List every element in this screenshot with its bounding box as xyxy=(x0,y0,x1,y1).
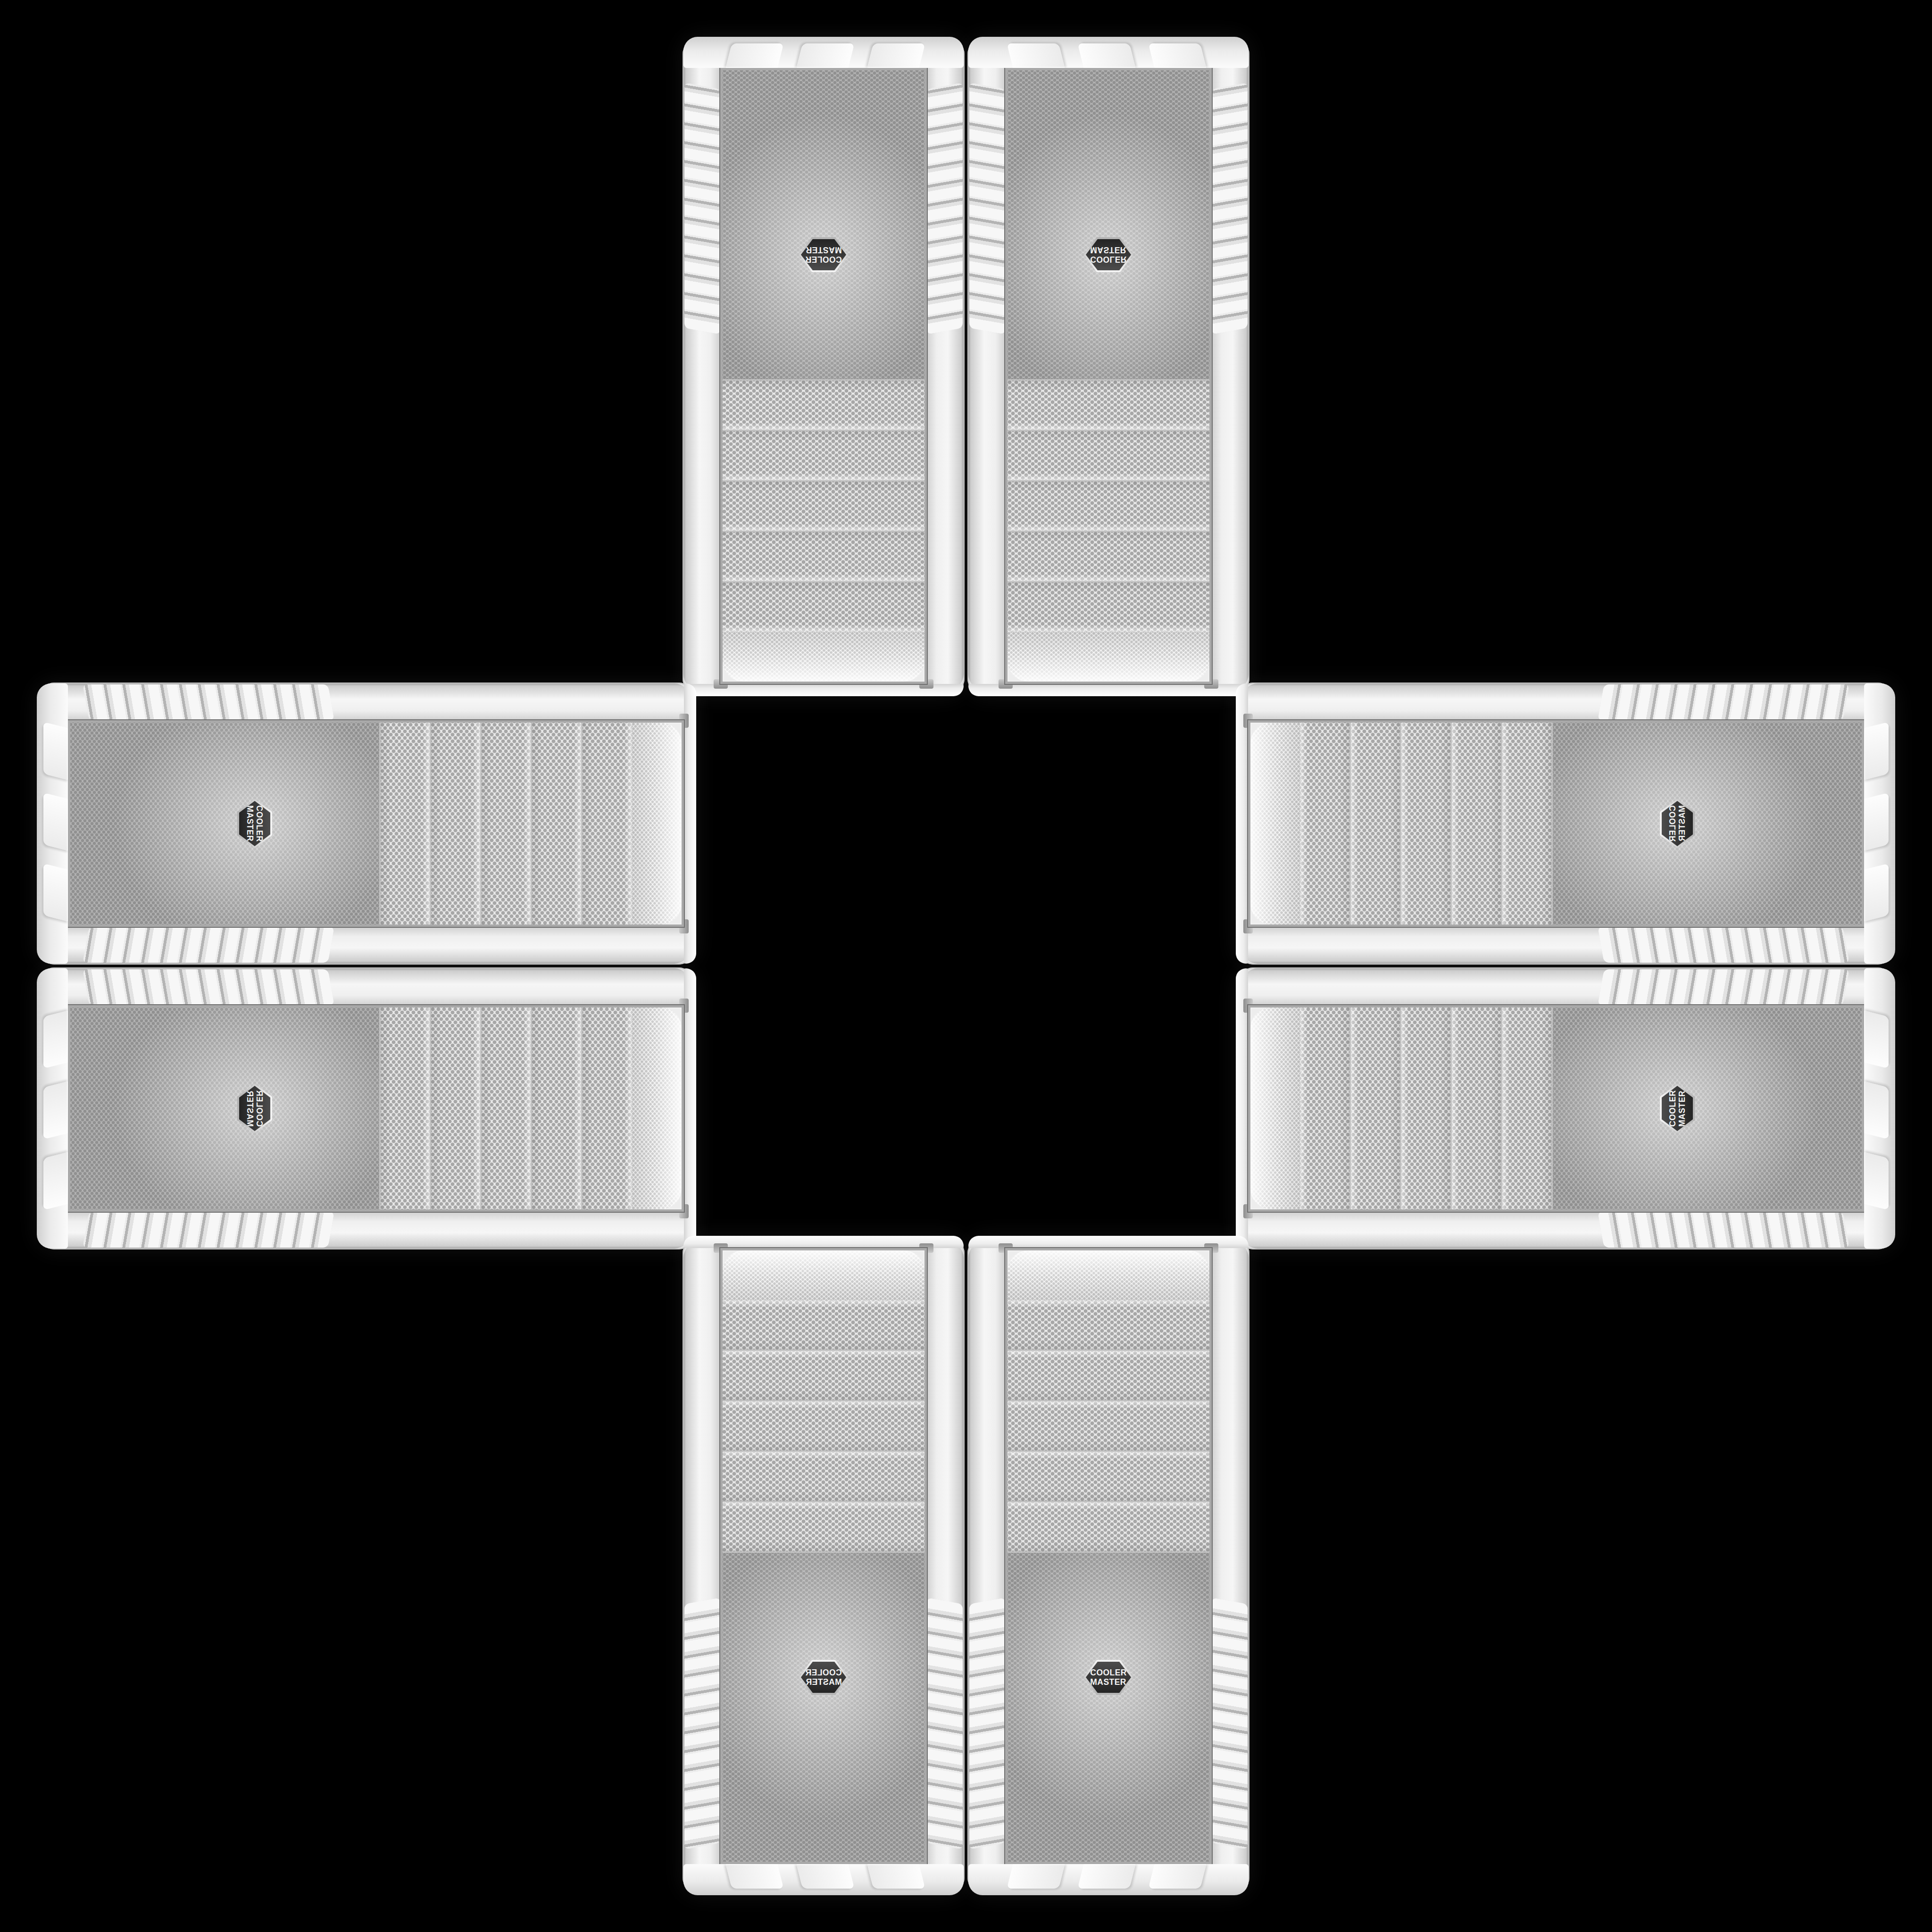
vent-cap-segment xyxy=(726,1864,784,1889)
mesh-top-curve xyxy=(1008,632,1209,682)
drive-bay-cover xyxy=(581,723,632,924)
front-mesh-region: COOLER MASTER xyxy=(720,1248,927,1864)
case-side-rail-right xyxy=(683,43,721,690)
front-mesh-panel: COOLER MASTER xyxy=(70,1008,379,1209)
badge-text-line2: MASTER xyxy=(245,806,255,842)
pc-case-front-panel: COOLER MASTER xyxy=(683,1236,965,1895)
cooler-master-badge: COOLER MASTER xyxy=(237,1084,272,1133)
vent-cap-segment xyxy=(43,1152,68,1210)
drive-bay-cover xyxy=(1401,723,1452,924)
drive-bay-cover xyxy=(1008,430,1209,480)
front-mesh-region: COOLER MASTER xyxy=(68,720,684,927)
badge-text-line1: COOLER xyxy=(805,255,842,264)
front-mesh-panel: COOLER MASTER xyxy=(1008,70,1209,379)
drive-bay-cover xyxy=(723,480,924,531)
front-mesh-region: COOLER MASTER xyxy=(68,1005,684,1212)
front-mesh-region: COOLER MASTER xyxy=(1005,1248,1212,1864)
badge-text-line2: MASTER xyxy=(806,1677,842,1687)
vent-cap-segment xyxy=(1864,864,1889,922)
drive-bay-cover xyxy=(1008,1300,1209,1351)
bottom-vent-cap xyxy=(968,1864,1249,1895)
badge-text-line1: COOLER xyxy=(255,1090,264,1127)
drive-bay-cover xyxy=(723,531,924,581)
drive-bay-cover xyxy=(480,723,531,924)
case-panel-top-right: COOLER MASTER xyxy=(967,37,1249,696)
drive-bay-cover xyxy=(430,723,480,924)
drive-bay-cover xyxy=(1008,379,1209,430)
case-panel-left-bottom: COOLER MASTER xyxy=(37,967,696,1249)
vent-cap-segment xyxy=(43,722,68,780)
grip-ribs-right xyxy=(83,927,334,963)
badge-text-line1: COOLER xyxy=(1090,1668,1127,1677)
drive-bay-cover xyxy=(531,1008,581,1209)
grip-ribs-right xyxy=(1212,1598,1248,1849)
badge-text-line2: MASTER xyxy=(1677,1091,1687,1127)
grip-ribs-left xyxy=(969,1598,1005,1849)
drive-bay-covers xyxy=(723,1300,924,1553)
badge-text-line2: MASTER xyxy=(1091,245,1127,255)
case-side-rail-left xyxy=(43,683,690,721)
badge-text-line1: COOLER xyxy=(1668,805,1677,842)
vent-cap-segment xyxy=(1864,793,1889,851)
pc-case-front-panel: COOLER MASTER xyxy=(967,1236,1249,1895)
case-side-rail-left xyxy=(1242,1211,1889,1249)
drive-bay-covers xyxy=(1008,1300,1209,1553)
vent-cap-segment xyxy=(43,1011,68,1069)
bottom-vent-cap xyxy=(683,37,964,68)
front-mesh-panel: COOLER MASTER xyxy=(70,723,379,924)
front-mesh-region: COOLER MASTER xyxy=(1248,1005,1864,1212)
case-panel-bottom-right: COOLER MASTER xyxy=(967,1236,1249,1895)
front-mesh-panel: COOLER MASTER xyxy=(1553,1008,1862,1209)
drive-bay-covers xyxy=(1300,1008,1553,1209)
pc-case-front-panel: COOLER MASTER xyxy=(1236,967,1895,1249)
drive-bay-covers xyxy=(723,379,924,632)
drive-bay-cover xyxy=(430,1008,480,1209)
drive-bay-cover xyxy=(1401,1008,1452,1209)
case-side-rail-right xyxy=(43,968,690,1006)
bottom-vent-cap xyxy=(683,1864,964,1895)
drive-bay-cover xyxy=(1008,480,1209,531)
front-mesh-region: COOLER MASTER xyxy=(720,68,927,684)
mesh-top-curve xyxy=(723,632,924,682)
mesh-top-curve xyxy=(1250,1008,1300,1209)
drive-bay-cover xyxy=(1300,723,1351,924)
case-side-rail-right xyxy=(1211,1242,1249,1889)
bottom-vent-cap xyxy=(1864,968,1895,1249)
cooler-master-badge: COOLER MASTER xyxy=(1084,1660,1133,1695)
pc-case-front-panel: COOLER MASTER xyxy=(967,37,1249,696)
case-side-rail-left xyxy=(926,1242,964,1889)
drive-bay-cover xyxy=(1502,1008,1553,1209)
case-side-rail-right xyxy=(1242,968,1889,1006)
case-side-rail-left xyxy=(968,1242,1006,1889)
drive-bay-covers xyxy=(379,1008,632,1209)
vent-cap-segment xyxy=(43,864,68,922)
pc-case-front-panel: COOLER MASTER xyxy=(1236,683,1895,965)
drive-bay-cover xyxy=(1008,1502,1209,1553)
case-side-rail-left xyxy=(926,43,964,690)
mesh-top-curve xyxy=(632,1008,682,1209)
grip-ribs-left xyxy=(83,1212,334,1248)
drive-bay-cover xyxy=(1502,723,1553,924)
drive-bay-cover xyxy=(723,379,924,430)
badge-text-line1: COOLER xyxy=(805,1668,842,1677)
grip-ribs-right xyxy=(1212,83,1248,334)
grip-ribs-right xyxy=(684,83,720,334)
case-side-rail-left xyxy=(1242,683,1889,721)
grip-ribs-left xyxy=(969,83,1005,334)
grip-ribs-left xyxy=(1598,684,1849,720)
drive-bay-cover xyxy=(379,723,430,924)
bottom-vent-cap xyxy=(1864,683,1895,964)
vent-cap-segment xyxy=(1007,1864,1065,1889)
grip-ribs-left xyxy=(927,83,963,334)
front-mesh-panel: COOLER MASTER xyxy=(723,1553,924,1862)
bottom-vent-cap xyxy=(37,683,68,964)
drive-bay-cover xyxy=(723,581,924,632)
cooler-master-badge: COOLER MASTER xyxy=(799,237,848,272)
drive-bay-cover xyxy=(723,430,924,480)
drive-bay-cover xyxy=(531,723,581,924)
mesh-top-curve xyxy=(1250,723,1300,924)
grip-ribs-left xyxy=(83,684,334,720)
grip-ribs-right xyxy=(83,969,334,1005)
grip-ribs-left xyxy=(1598,1212,1849,1248)
vent-cap-segment xyxy=(43,793,68,851)
drive-bay-cover xyxy=(723,1401,924,1452)
drive-bay-cover xyxy=(1008,1452,1209,1502)
case-side-rail-right xyxy=(1211,43,1249,690)
cooler-master-badge: COOLER MASTER xyxy=(1660,799,1695,848)
badge-text-line2: MASTER xyxy=(1677,806,1687,842)
grip-ribs-left xyxy=(927,1598,963,1849)
drive-bay-cover xyxy=(1008,531,1209,581)
badge-text-line2: MASTER xyxy=(806,245,842,255)
vent-cap-segment xyxy=(797,1864,855,1889)
bottom-vent-cap xyxy=(968,37,1249,68)
drive-bay-cover xyxy=(1300,1008,1351,1209)
drive-bay-covers xyxy=(1300,723,1553,924)
drive-bay-cover xyxy=(723,1502,924,1553)
drive-bay-cover xyxy=(581,1008,632,1209)
badge-text-line1: COOLER xyxy=(255,805,264,842)
drive-bay-covers xyxy=(1008,379,1209,632)
badge-text-line2: MASTER xyxy=(1091,1677,1127,1687)
drive-bay-covers xyxy=(379,723,632,924)
case-side-rail-right xyxy=(43,926,690,964)
badge-text-line1: COOLER xyxy=(1090,255,1127,264)
kaleidoscope-collage: COOLER MASTER xyxy=(0,0,1932,1932)
case-panel-right-bottom: COOLER MASTER xyxy=(1236,967,1895,1249)
cooler-master-badge: COOLER MASTER xyxy=(237,799,272,848)
drive-bay-cover xyxy=(723,1351,924,1401)
vent-cap-segment xyxy=(1007,43,1065,68)
vent-cap-segment xyxy=(1149,1864,1207,1889)
badge-text-line1: COOLER xyxy=(1668,1090,1677,1127)
drive-bay-cover xyxy=(1452,1008,1502,1209)
mesh-top-curve xyxy=(723,1250,924,1300)
pc-case-front-panel: COOLER MASTER xyxy=(37,683,696,965)
vent-cap-segment xyxy=(1864,722,1889,780)
vent-cap-segment xyxy=(1149,43,1207,68)
vent-cap-segment xyxy=(1864,1082,1889,1140)
drive-bay-cover xyxy=(379,1008,430,1209)
drive-bay-cover xyxy=(1351,723,1401,924)
vent-cap-segment xyxy=(1078,43,1136,68)
drive-bay-cover xyxy=(1008,1401,1209,1452)
grip-ribs-right xyxy=(1598,927,1849,963)
case-panel-left-top: COOLER MASTER xyxy=(37,683,696,965)
front-mesh-region: COOLER MASTER xyxy=(1248,720,1864,927)
front-mesh-region: COOLER MASTER xyxy=(1005,68,1212,684)
case-side-rail-left xyxy=(968,43,1006,690)
pc-case-front-panel: COOLER MASTER xyxy=(683,37,965,696)
badge-text-line2: MASTER xyxy=(245,1091,255,1127)
drive-bay-cover xyxy=(1008,581,1209,632)
drive-bay-cover xyxy=(480,1008,531,1209)
vent-cap-segment xyxy=(867,1864,925,1889)
vent-cap-segment xyxy=(1864,1152,1889,1210)
drive-bay-cover xyxy=(723,1452,924,1502)
case-panel-right-top: COOLER MASTER xyxy=(1236,683,1895,965)
pc-case-front-panel: COOLER MASTER xyxy=(37,967,696,1249)
front-mesh-panel: COOLER MASTER xyxy=(723,70,924,379)
vent-cap-segment xyxy=(1864,1011,1889,1069)
cooler-master-badge: COOLER MASTER xyxy=(1660,1084,1695,1133)
vent-cap-segment xyxy=(726,43,784,68)
cooler-master-badge: COOLER MASTER xyxy=(799,1660,848,1695)
vent-cap-segment xyxy=(867,43,925,68)
cooler-master-badge: COOLER MASTER xyxy=(1084,237,1133,272)
case-side-rail-left xyxy=(43,1211,690,1249)
bottom-vent-cap xyxy=(37,968,68,1249)
mesh-top-curve xyxy=(1008,1250,1209,1300)
drive-bay-cover xyxy=(1351,1008,1401,1209)
drive-bay-cover xyxy=(723,1300,924,1351)
drive-bay-cover xyxy=(1008,1351,1209,1401)
vent-cap-segment xyxy=(43,1082,68,1140)
grip-ribs-right xyxy=(1598,969,1849,1005)
case-panel-bottom-left: COOLER MASTER xyxy=(683,1236,965,1895)
front-mesh-panel: COOLER MASTER xyxy=(1553,723,1862,924)
case-panel-top-left: COOLER MASTER xyxy=(683,37,965,696)
case-side-rail-right xyxy=(683,1242,721,1889)
vent-cap-segment xyxy=(1078,1864,1136,1889)
grip-ribs-right xyxy=(684,1598,720,1849)
vent-cap-segment xyxy=(797,43,855,68)
drive-bay-cover xyxy=(1452,723,1502,924)
front-mesh-panel: COOLER MASTER xyxy=(1008,1553,1209,1862)
mesh-top-curve xyxy=(632,723,682,924)
case-side-rail-right xyxy=(1242,926,1889,964)
